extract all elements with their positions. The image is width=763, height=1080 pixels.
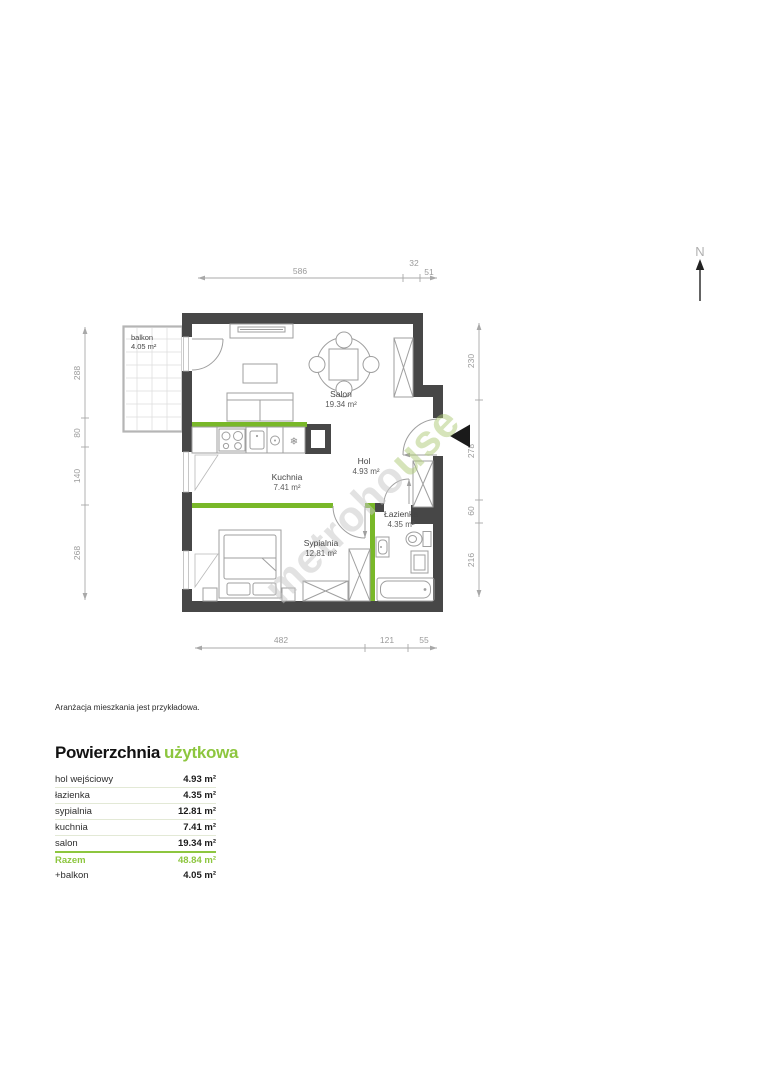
- summary-row-salon: salon 19.34 m²: [55, 836, 216, 853]
- hol-name: Hol: [358, 456, 371, 466]
- sink-icon: [250, 431, 264, 449]
- summary-row-kuchnia: kuchnia 7.41 m²: [55, 820, 216, 836]
- hob-icon: [271, 436, 280, 445]
- row-label: łazienka: [55, 790, 90, 801]
- dim-right-60: 60: [466, 506, 476, 516]
- salon-name: Salon: [330, 389, 352, 399]
- nightstand: [203, 588, 217, 601]
- coffee-table: [243, 364, 277, 383]
- salon-area: 19.34 m²: [325, 400, 357, 409]
- total-label: Razem: [55, 855, 86, 866]
- dimensions-right: 230 278 60 216: [466, 323, 483, 597]
- summary-row-balkon: +balkon 4.05 m²: [55, 868, 216, 883]
- bathtub-icon: [377, 578, 434, 601]
- wall-right-upper: [413, 313, 423, 392]
- row-label: kuchnia: [55, 822, 88, 833]
- toilet-icon: [406, 532, 431, 547]
- plan-note: Aranżacja mieszkania jest przykładowa.: [55, 703, 200, 712]
- kitchen-counter: ❄: [192, 427, 305, 453]
- row-value: 19.34 m²: [178, 838, 216, 849]
- dim-right-216: 216: [466, 553, 476, 567]
- row-value: 4.93 m²: [183, 774, 216, 785]
- dim-left-288: 288: [72, 366, 82, 380]
- dining-set: [309, 332, 379, 397]
- dimensions-top: 586 32 51: [198, 258, 437, 282]
- sofa: [227, 393, 293, 421]
- washbasin-icon: [376, 537, 389, 557]
- dining-table: [329, 349, 358, 380]
- lazienka-name: Łazienka: [384, 509, 418, 519]
- dimensions-left: 288 80 140 268: [72, 327, 89, 600]
- pillow: [227, 583, 250, 595]
- balcony: balkon 4.05 m²: [124, 327, 183, 432]
- summary-row-hol: hol wejściowy 4.93 m²: [55, 772, 216, 788]
- dining-chair: [309, 357, 325, 373]
- balcony-name: balkon: [131, 333, 153, 342]
- summary-title-black: Powierzchnia: [55, 743, 160, 762]
- sypialnia-area: 12.81 m²: [305, 549, 337, 558]
- wall-top: [182, 313, 423, 324]
- summary-row-total: Razem 48.84 m²: [55, 853, 216, 868]
- tv-cabinet: [230, 324, 293, 338]
- bedroom-wardrobe-tall: [349, 549, 370, 601]
- dim-bottom-55: 55: [419, 635, 429, 645]
- dim-left-80: 80: [72, 428, 82, 438]
- dim-bottom-121: 121: [380, 635, 394, 645]
- bathroom-fixtures: [376, 532, 434, 602]
- salon-furniture: [227, 324, 413, 421]
- summary-title-green: użytkowa: [164, 743, 238, 762]
- bedroom-window-swing: [195, 554, 218, 587]
- freezer-icon: ❄: [290, 437, 298, 448]
- dining-chair: [336, 332, 352, 348]
- row-value: 4.35 m²: [183, 790, 216, 801]
- wall-bottom: [182, 601, 443, 612]
- extra-value: 4.05 m²: [183, 870, 216, 881]
- washing-machine-icon: [411, 551, 428, 573]
- floorplan-page: { "plan": { "north_label": "N", "note": …: [0, 0, 763, 1080]
- kitchen-shaft-inner: [311, 430, 325, 448]
- kitchen-window-swing: [195, 455, 218, 490]
- kuchnia-area: 7.41 m²: [273, 483, 300, 492]
- summary-row-sypialnia: sypialnia 12.81 m²: [55, 804, 216, 820]
- north-label: N: [695, 244, 704, 259]
- dining-chair: [363, 357, 379, 373]
- sypialnia-name: Sypialnia: [304, 538, 339, 548]
- dim-bottom-482: 482: [274, 635, 288, 645]
- dim-right-230: 230: [466, 354, 476, 368]
- row-value: 7.41 m²: [183, 822, 216, 833]
- dim-left-268: 268: [72, 546, 82, 560]
- dim-top-586: 586: [293, 266, 307, 276]
- total-value: 48.84 m²: [178, 855, 216, 866]
- row-value: 12.81 m²: [178, 806, 216, 817]
- dim-top-51: 51: [424, 267, 434, 277]
- area-summary: Powierzchniaużytkowa hol wejściowy 4.93 …: [55, 743, 216, 883]
- balcony-door: [192, 339, 223, 370]
- row-label: salon: [55, 838, 78, 849]
- dim-left-140: 140: [72, 469, 82, 483]
- extra-label: +balkon: [55, 870, 89, 881]
- row-label: hol wejściowy: [55, 774, 113, 785]
- summary-row-lazienka: łazienka 4.35 m²: [55, 788, 216, 804]
- stove-icon: [219, 429, 245, 451]
- balcony-area: 4.05 m²: [131, 342, 157, 351]
- floor-plan: N 586 32 51 482 121 55 288 80 140 268: [0, 0, 763, 730]
- north-indicator: N: [695, 244, 704, 301]
- lazienka-area: 4.35 m²: [387, 520, 414, 529]
- summary-title: Powierzchniaużytkowa: [55, 743, 216, 763]
- north-arrow-head: [696, 259, 704, 270]
- partition-salon-kitchen: [192, 422, 307, 427]
- hol-area: 4.93 m²: [352, 467, 379, 476]
- row-label: sypialnia: [55, 806, 92, 817]
- partition-kitchen-bedroom: [192, 503, 333, 508]
- salon-wardrobe: [394, 338, 413, 397]
- kuchnia-name: Kuchnia: [272, 472, 303, 482]
- dimensions-bottom: 482 121 55: [195, 635, 437, 652]
- dim-top-32: 32: [409, 258, 419, 268]
